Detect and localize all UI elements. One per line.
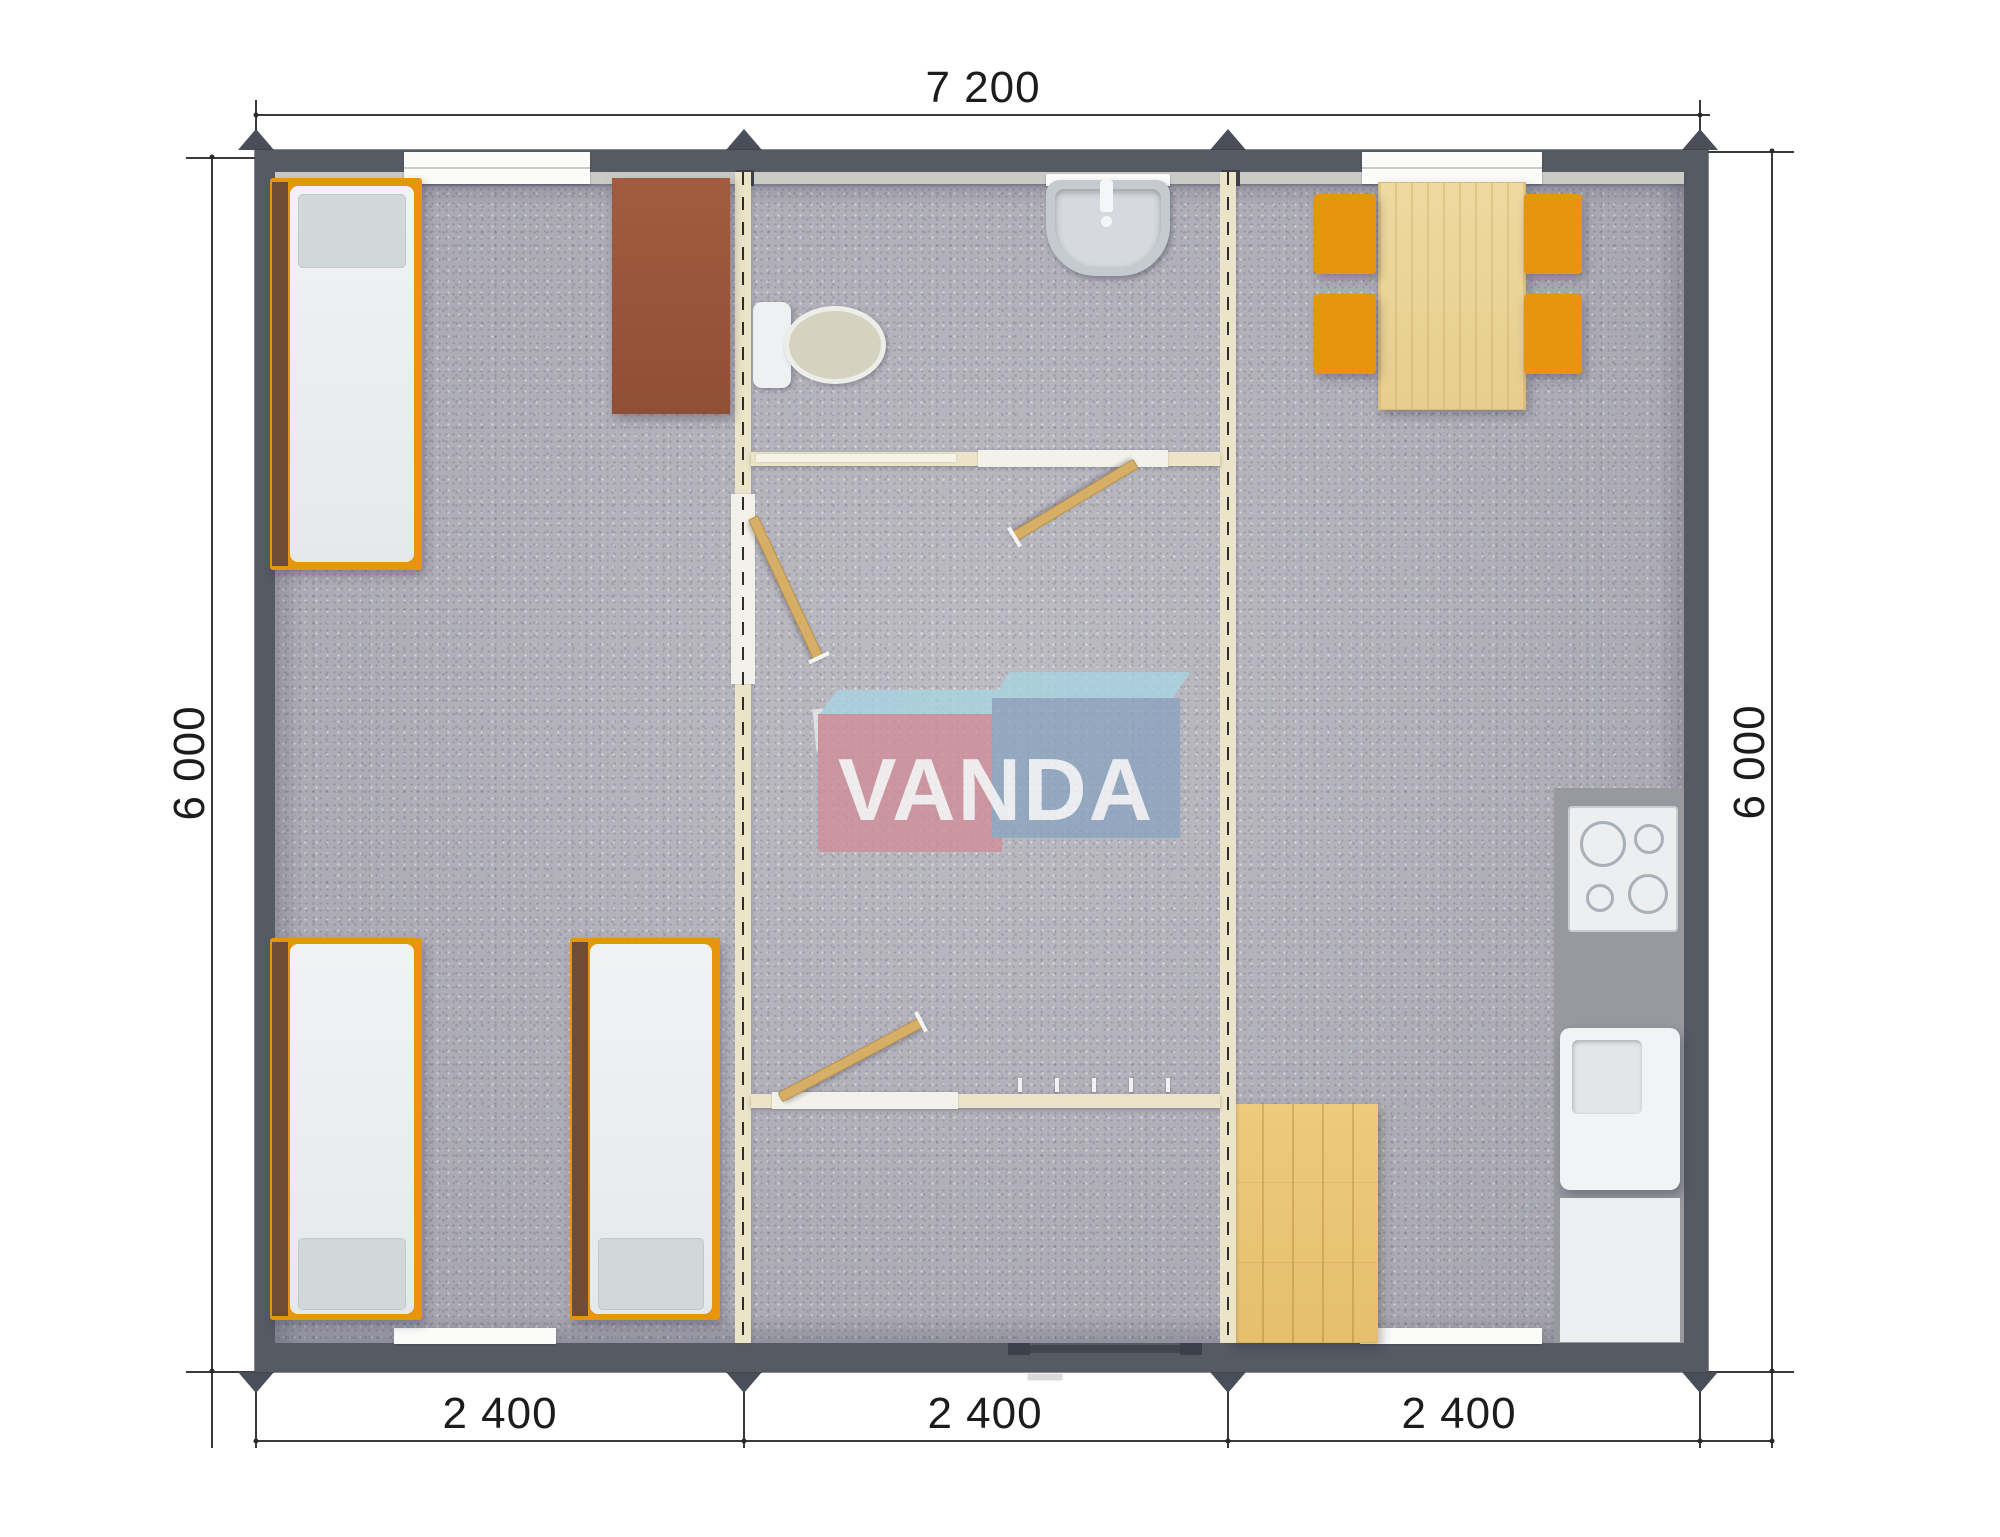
dining-table	[1378, 182, 1526, 410]
coat-hook	[1018, 1078, 1022, 1092]
bed-bottom-left	[270, 938, 422, 1320]
module-wall-right-dashes	[1227, 172, 1229, 1343]
stool-bottom-left	[1314, 294, 1376, 374]
joint-marker	[726, 129, 762, 150]
bed-sideboard	[272, 942, 288, 1316]
toilet-bowl	[784, 306, 886, 384]
dimension-dot	[210, 1369, 215, 1374]
logo-box-top-face	[992, 672, 1190, 699]
dimension-dot	[742, 1439, 747, 1444]
kitchen-sink-basin	[1572, 1040, 1642, 1114]
washbasin-drain	[1101, 216, 1112, 227]
kitchen-sink	[1560, 1028, 1680, 1190]
window-bottom-left	[394, 1328, 556, 1344]
logo-box-top-face	[818, 690, 1014, 716]
dimension-dot	[254, 1439, 259, 1444]
burner-small	[1586, 884, 1614, 912]
dimension-dot	[210, 155, 215, 160]
bed-pillow	[298, 1238, 406, 1310]
stool-top-left	[1314, 194, 1376, 274]
joint-marker	[726, 1372, 762, 1393]
dimension-tick-right-top	[1704, 151, 1794, 153]
bed-sideboard	[272, 182, 288, 566]
entrance-door-frame	[1008, 1343, 1030, 1355]
door-opening-hall	[772, 1092, 958, 1109]
bed-pillow	[298, 194, 406, 268]
dimension-line-bottom	[256, 1440, 1772, 1442]
dimension-tick-left-top	[186, 157, 260, 159]
entrance-door-frame	[1180, 1343, 1202, 1355]
kitchen-cabinet	[1560, 1198, 1680, 1342]
burner-small	[1634, 824, 1664, 854]
dimension-dot	[1770, 149, 1775, 154]
dimension-label-top: 7 200	[925, 63, 1040, 113]
joint-marker	[1210, 129, 1246, 150]
window-bottom-right	[1360, 1328, 1542, 1344]
burner-large	[1628, 874, 1668, 914]
dimension-label-bottom-3: 2 400	[1401, 1389, 1516, 1439]
washbasin-faucet	[1100, 180, 1113, 212]
stool-bottom-right	[1524, 294, 1582, 374]
bed-sideboard	[572, 942, 588, 1316]
window-top-left	[404, 152, 590, 184]
dimension-label-bottom-1: 2 400	[442, 1389, 557, 1439]
cooktop	[1568, 806, 1678, 932]
dimension-label-bottom-2: 2 400	[927, 1389, 1042, 1439]
dimension-dot	[1698, 1439, 1703, 1444]
joint-marker	[1682, 1372, 1718, 1393]
entrance-sill	[1028, 1374, 1062, 1380]
joint-marker	[238, 129, 274, 150]
dimension-label-right: 6 000	[1725, 704, 1775, 819]
burner-large	[1580, 821, 1626, 867]
wardrobe-desk	[612, 178, 730, 414]
dimension-dot	[1770, 1439, 1775, 1444]
wood-deck-floor	[1232, 1104, 1378, 1343]
stool-top-right	[1524, 194, 1582, 274]
coat-hook	[1129, 1078, 1133, 1092]
entrance-door	[1008, 1345, 1202, 1353]
dimension-dot	[1226, 1439, 1231, 1444]
dimension-dot	[1698, 113, 1703, 118]
door-opening-bathroom	[978, 450, 1168, 467]
joint-marker	[238, 1372, 274, 1393]
coat-hook	[1092, 1078, 1096, 1092]
window-top-right	[1362, 152, 1542, 184]
logo-text: VANDA	[824, 746, 1168, 834]
coat-hook	[1055, 1078, 1059, 1092]
module-wall-left-dashes	[742, 172, 744, 1343]
joint-marker	[1210, 1372, 1246, 1393]
vanda-watermark: VANDA	[810, 688, 1182, 868]
dimension-dot	[254, 113, 259, 118]
joint-marker	[1682, 129, 1718, 150]
dimension-line-top	[256, 114, 1710, 116]
bed-pillow	[598, 1238, 704, 1310]
bed-bottom-middle	[570, 938, 720, 1320]
bathroom-partition-highlight	[756, 454, 956, 462]
dimension-label-left: 6 000	[165, 705, 215, 820]
dimension-dot	[1770, 1369, 1775, 1374]
bed-top-left	[270, 178, 422, 570]
floor-plan-canvas: 7 200 6 000 6 000 2 400 2 400 2 400	[0, 0, 2000, 1537]
coat-hook	[1166, 1078, 1170, 1092]
